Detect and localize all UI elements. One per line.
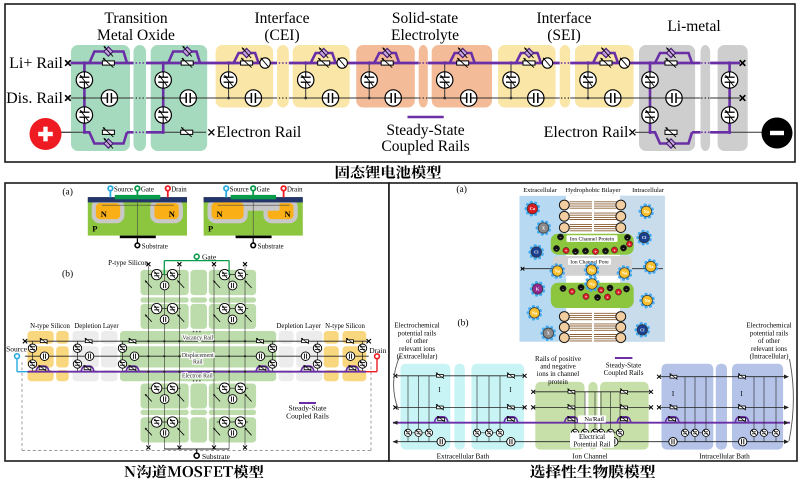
svg-text:Drain: Drain [287, 186, 303, 193]
svg-text:P-type Silicon: P-type Silicon [108, 259, 148, 267]
svg-text:Electrochemical: Electrochemical [746, 322, 792, 330]
svg-text:of other: of other [406, 337, 429, 345]
svg-text:Dis. Rail: Dis. Rail [6, 90, 63, 107]
svg-text:+: + [613, 249, 616, 254]
svg-text:Na: Na [648, 264, 654, 269]
svg-text:Depletion Layer: Depletion Layer [277, 323, 322, 330]
svg-text:+: + [628, 243, 631, 248]
svg-text:Intracellular Bath: Intracellular Bath [699, 452, 750, 460]
svg-text:potential rails: potential rails [398, 329, 437, 337]
svg-text:Na: Na [589, 282, 595, 287]
svg-text:Substrate: Substrate [258, 242, 284, 250]
svg-text:P: P [92, 224, 97, 234]
svg-text:Vacancy Rail: Vacancy Rail [182, 335, 213, 341]
svg-text:Electrolyte: Electrolyte [391, 27, 459, 44]
svg-text:+: + [606, 296, 609, 301]
svg-text:Substrate: Substrate [142, 242, 168, 250]
svg-text:Hydrophobic Bilayer: Hydrophobic Bilayer [565, 187, 621, 194]
svg-text:relevant ions: relevant ions [399, 345, 435, 353]
svg-text:Cl: Cl [640, 327, 645, 332]
svg-text:Drain: Drain [171, 186, 187, 193]
svg-text:Coupled Rails: Coupled Rails [381, 138, 469, 155]
svg-text:N: N [101, 209, 108, 219]
svg-text:Li-metal: Li-metal [667, 18, 720, 35]
svg-text:Ion Channel: Ion Channel [572, 452, 607, 460]
svg-text:Depletion Layer: Depletion Layer [74, 323, 119, 330]
svg-text:+: + [565, 249, 568, 254]
svg-text:protein: protein [548, 378, 568, 386]
svg-text:(a): (a) [456, 184, 467, 195]
svg-text:Solid-state: Solid-state [392, 10, 458, 27]
svg-text:Li+ Rail: Li+ Rail [9, 55, 63, 72]
svg-text:Ion Channel Protein: Ion Channel Protein [570, 237, 615, 243]
svg-text:(Extracellular): (Extracellular) [397, 353, 438, 361]
svg-text:Na: Na [622, 271, 628, 276]
svg-text:(SEI): (SEI) [547, 27, 581, 44]
svg-text:Gate: Gate [141, 186, 154, 193]
svg-text:Potential Rail: Potential Rail [573, 442, 610, 449]
svg-text:Gate: Gate [257, 186, 270, 193]
svg-text:N-type Silicon: N-type Silicon [325, 323, 365, 330]
svg-text:Source: Source [230, 186, 249, 193]
svg-text:relevant ions: relevant ions [751, 345, 787, 353]
svg-text:Metal Oxide: Metal Oxide [97, 27, 175, 44]
svg-text:Transition: Transition [104, 10, 167, 27]
svg-text:N-type Silicon: N-type Silicon [30, 323, 70, 330]
svg-text:N: N [169, 209, 176, 219]
svg-text:Electrical: Electrical [579, 434, 605, 441]
svg-text:Interface: Interface [536, 10, 591, 27]
svg-text:Gate: Gate [202, 253, 217, 262]
svg-text:Interface: Interface [254, 10, 309, 27]
svg-text:Coupled Rails: Coupled Rails [286, 411, 329, 420]
svg-text:N: N [217, 209, 224, 219]
svg-text:Rail: Rail [593, 416, 604, 423]
svg-text:Na: Na [589, 268, 595, 273]
svg-text:Steady-State: Steady-State [386, 122, 464, 139]
svg-text:potential rails: potential rails [750, 329, 789, 337]
svg-text:+: + [571, 290, 574, 295]
svg-text:Electrochemical: Electrochemical [394, 322, 440, 330]
svg-text:of other: of other [758, 337, 781, 345]
svg-text:Na: Na [555, 269, 561, 274]
svg-text:Cl: Cl [534, 250, 539, 255]
svg-text:(a): (a) [62, 187, 73, 198]
svg-text:Electron Rail: Electron Rail [217, 124, 302, 141]
svg-text:Na: Na [644, 209, 650, 214]
svg-text:Coupled Rails: Coupled Rails [604, 369, 644, 377]
svg-text:Na: Na [532, 310, 538, 315]
svg-text:N: N [285, 209, 292, 219]
svg-text:Na: Na [645, 298, 651, 303]
svg-text:(CEI): (CEI) [264, 27, 299, 44]
svg-text:Substrate: Substrate [202, 452, 231, 461]
svg-text:K: K [536, 286, 540, 291]
svg-text:P: P [208, 224, 213, 234]
svg-text:Ca: Ca [530, 206, 536, 211]
svg-text:(b): (b) [457, 318, 468, 329]
svg-text:+: + [594, 250, 597, 255]
svg-text:(Intracellular): (Intracellular) [750, 353, 790, 361]
svg-text:Electron Rail: Electron Rail [544, 124, 629, 141]
svg-text:Extracellular: Extracellular [523, 187, 557, 194]
svg-text:Source: Source [6, 344, 27, 353]
svg-text:Electron Rail: Electron Rail [182, 373, 213, 379]
svg-text:+: + [600, 289, 603, 294]
svg-text:+: + [585, 295, 588, 300]
svg-text:Rail: Rail [193, 359, 203, 365]
svg-text:Cl: Cl [642, 235, 647, 240]
svg-text:Na: Na [584, 416, 592, 423]
svg-text:+: + [617, 291, 620, 296]
svg-text:(b): (b) [62, 269, 73, 280]
svg-text:Source: Source [114, 186, 133, 193]
svg-text:Intracellular: Intracellular [632, 187, 665, 194]
svg-text:Displacement: Displacement [182, 353, 214, 359]
svg-text:Extracellular Bath: Extracellular Bath [437, 452, 490, 460]
